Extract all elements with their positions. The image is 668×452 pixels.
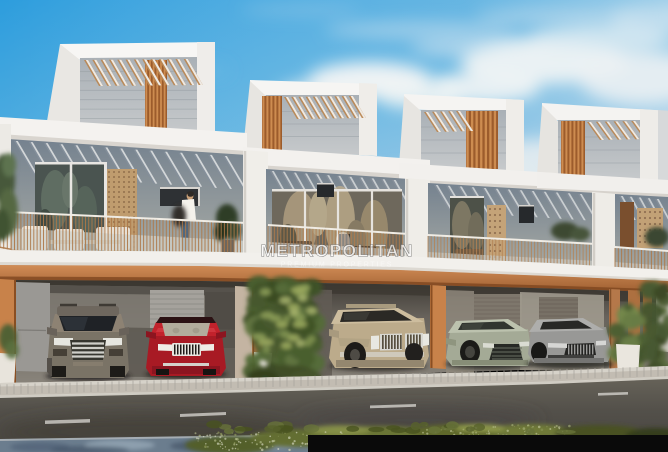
svg-text:PREMIUM PROPERTIES: PREMIUM PROPERTIES <box>281 262 393 269</box>
svg-text:METROPOLITAN: METROPOLITAN <box>260 241 413 261</box>
